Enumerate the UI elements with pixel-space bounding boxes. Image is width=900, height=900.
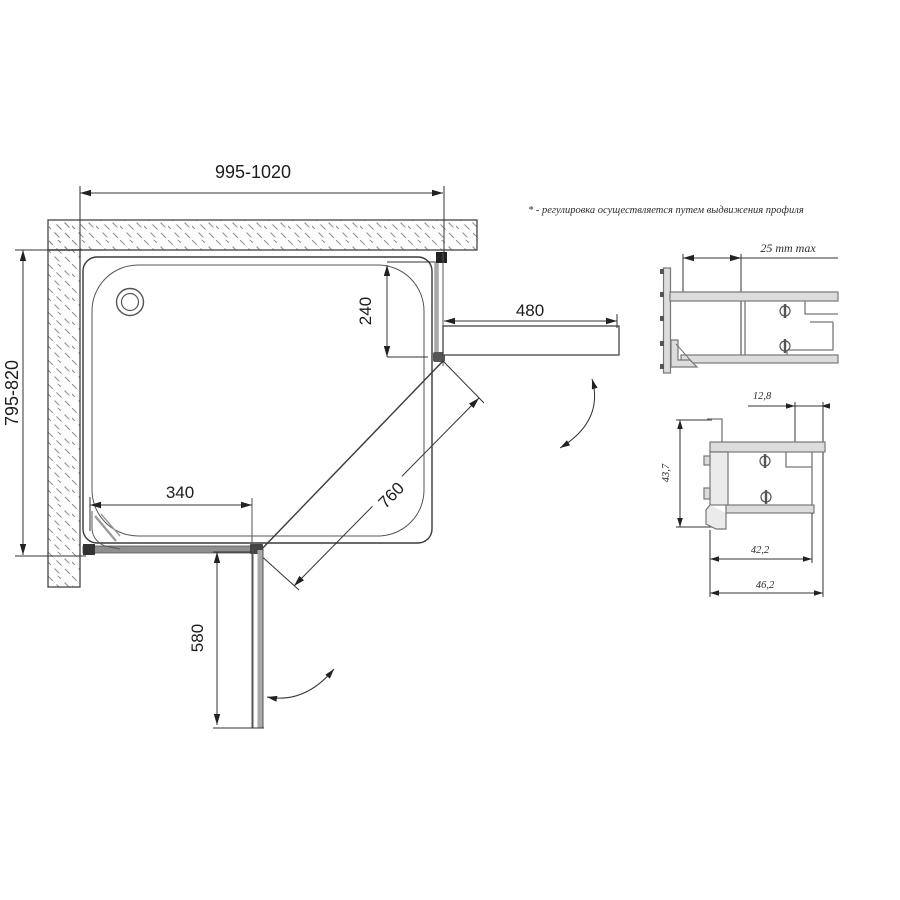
plan-view: 995-1020 795-820 240 bbox=[2, 162, 619, 728]
detail-bottom-inner-label: 42,2 bbox=[751, 545, 770, 556]
profile-top-bar bbox=[710, 442, 825, 452]
profile-bottom-bar bbox=[726, 505, 814, 513]
profile-bottom-bar bbox=[681, 355, 838, 363]
screw-icon bbox=[760, 454, 770, 468]
swing-arc-right bbox=[560, 379, 598, 448]
wall-top bbox=[48, 220, 477, 250]
wall-profile-section bbox=[436, 252, 447, 263]
dim-240-label: 240 bbox=[356, 297, 375, 325]
profile-left-bar bbox=[710, 452, 728, 505]
profile-foot bbox=[671, 340, 697, 367]
shower-enclosure-drawing: 995-1020 795-820 240 bbox=[0, 0, 900, 900]
dim-width-label: 995-1020 bbox=[215, 162, 291, 182]
door-open-right: 480 bbox=[443, 301, 619, 355]
door-panel-diagonal: 760 bbox=[258, 361, 484, 590]
dim-480-label: 480 bbox=[516, 301, 544, 320]
profile-top-bar bbox=[670, 292, 838, 301]
detail-bottom-outer-label: 46,2 bbox=[756, 580, 775, 591]
wall-left bbox=[48, 220, 80, 587]
detail-section-bottom: 12,8 43,7 42,2 bbox=[661, 391, 830, 597]
wall-profile-strip bbox=[664, 268, 671, 373]
dim-580-label: 580 bbox=[188, 624, 207, 652]
detail-bottom-left-label: 43,7 bbox=[661, 463, 672, 482]
detail-section-top: 25 mm max bbox=[660, 241, 838, 373]
note-text: * - регулировка осуществляется путем выд… bbox=[528, 205, 804, 216]
dim-depth-label: 795-820 bbox=[2, 360, 22, 426]
screw-icon bbox=[780, 304, 790, 318]
technical-drawing-page: 995-1020 795-820 240 bbox=[0, 0, 900, 900]
detail-top-adjust-label: 25 mm max bbox=[760, 241, 816, 255]
dim-340-label: 340 bbox=[166, 483, 194, 502]
corner-profile-left bbox=[83, 544, 95, 555]
screw-icon bbox=[780, 339, 790, 353]
fixed-panel-bottom bbox=[83, 511, 263, 555]
drain-icon bbox=[117, 289, 144, 316]
door-open-bottom: 580 bbox=[188, 548, 264, 728]
profile-hook bbox=[707, 419, 722, 442]
profile-foot bbox=[706, 505, 726, 529]
swing-arc-bottom bbox=[267, 669, 334, 702]
detail-bottom-top-label: 12,8 bbox=[753, 391, 772, 402]
dim-340: 340 bbox=[90, 483, 252, 728]
screw-icon bbox=[761, 490, 771, 504]
